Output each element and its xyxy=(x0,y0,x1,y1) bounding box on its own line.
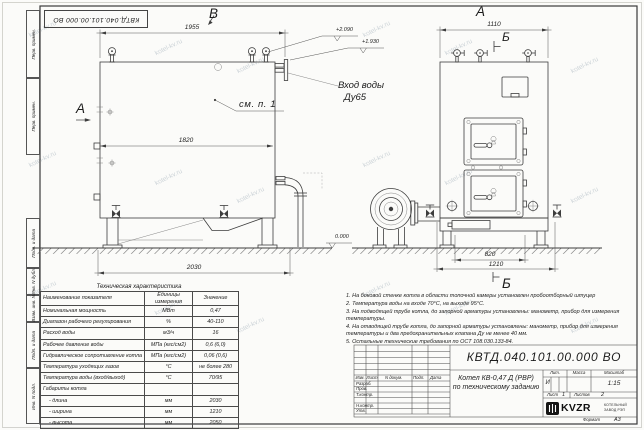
valve-icon xyxy=(553,205,562,217)
change-header-data: Дата xyxy=(430,376,441,380)
margin-box-inv-dubl: Инв. N дубл. xyxy=(26,268,40,295)
spec-table-cell: Температура уходящих газов xyxy=(41,361,145,372)
spec-table-cell: 70/95 xyxy=(193,373,239,384)
brand-name: KVZR xyxy=(561,403,591,414)
spec-header-value: Значение xyxy=(193,292,239,306)
section-label-a: А xyxy=(76,102,85,116)
role-prov: Пров. xyxy=(356,387,367,391)
valve-icon xyxy=(474,50,487,62)
valve-icon xyxy=(248,48,255,62)
sheets-label: Листов xyxy=(574,393,590,397)
valve-icon xyxy=(262,48,269,62)
spec-table-cell: °С xyxy=(145,373,193,384)
kvzr-logo-icon xyxy=(546,402,559,415)
spec-table-cell: Температура воды (вход/выход) xyxy=(41,373,145,384)
drawing-sheet: kotel-kv.rukotel-kv.rukotel-kv.rukotel-k… xyxy=(0,0,644,430)
spec-table-cell: % xyxy=(145,317,193,328)
corner-stamp-number: КВТД.040.101.00.000 ВО xyxy=(53,16,139,23)
notes-block: 1. На боковой стенке котла в области топ… xyxy=(346,293,637,347)
title-block-doc-number: КВТД.040.101.00.000 ВО xyxy=(467,351,622,363)
spec-table-cell: - высота xyxy=(41,417,145,428)
valve-icon xyxy=(220,206,229,218)
dim-side-820: 820 xyxy=(485,252,496,259)
centermark-icon xyxy=(107,109,114,116)
sheets-value: 2 xyxy=(601,393,604,399)
section-label-b-top: Б xyxy=(502,31,510,43)
inlet-label-line2: Ду65 xyxy=(344,93,366,103)
dim-side-1210: 1210 xyxy=(489,262,503,269)
valve-icon xyxy=(451,50,464,62)
valve-icon xyxy=(522,50,535,62)
spec-table-cell: 0,47 xyxy=(193,306,239,317)
spec-table-cell: 0,6 (6,0) xyxy=(193,339,239,350)
spec-table-cell: не более 280 xyxy=(193,361,239,372)
role-utv: Утв. xyxy=(356,409,366,413)
side-view xyxy=(371,41,562,248)
note-line: 1. На боковой стенке котла в области топ… xyxy=(346,293,637,300)
spec-table-cell: МПа (кгс/см2) xyxy=(145,350,193,361)
dim-front-inner: 1820 xyxy=(179,138,193,145)
spec-table-cell: мм xyxy=(145,406,193,417)
spec-table-cell: Рабочее давление воды xyxy=(41,339,145,350)
spec-table-cell: Номинальная мощность xyxy=(41,306,145,317)
dim-front-bottom: 2030 xyxy=(187,265,201,272)
spec-table-body: Номинальная мощностьМВт0,47Диапазон рабо… xyxy=(41,306,239,429)
view-label-a: А xyxy=(476,5,485,19)
spec-table-cell: 0,06 (0,6) xyxy=(193,350,239,361)
dimension-lines xyxy=(76,16,559,283)
pipe-stub-icon xyxy=(446,200,458,212)
valve-icon xyxy=(112,206,121,218)
note-line: 5. Остальные технические требования по О… xyxy=(346,339,637,346)
spec-table-cell: МПа (кгс/см2) xyxy=(145,339,193,350)
lit-value: И xyxy=(546,380,550,386)
elevation-zero: 0.000 xyxy=(335,235,349,241)
spec-header-name: Наименование показателя xyxy=(41,292,145,306)
see-note-callout: см. п. 1 xyxy=(239,100,276,110)
elevation-low: +1.930 xyxy=(362,40,379,46)
spec-table-row: Гидравлическое сопротивление котлаМПа (к… xyxy=(41,350,239,361)
centermark-icon xyxy=(109,160,116,167)
spec-table-cell: мм xyxy=(145,417,193,428)
spec-table-cell: 16 xyxy=(193,328,239,339)
spec-table-cell: 40-110 xyxy=(193,317,239,328)
format-value: А3 xyxy=(614,418,621,424)
margin-box-inv-podl: Инв. N подл. xyxy=(26,368,40,424)
spec-table-row: Рабочее давление водыМПа (кгс/см2)0,6 (6… xyxy=(41,339,239,350)
spec-table-cell: Расход воды xyxy=(41,328,145,339)
change-header-ndokum: N докум. xyxy=(385,376,402,380)
spec-table-cell xyxy=(145,384,193,395)
spec-table-row: Температура воды (вход/выход)°С70/95 xyxy=(41,373,239,384)
outlet-pipe xyxy=(276,173,322,247)
view-label-b: В xyxy=(209,7,218,21)
format-label: Формат xyxy=(583,418,600,422)
spec-table-row: Диапазон рабочего регулирования%40-110 xyxy=(41,317,239,328)
spec-table-cell: МВт xyxy=(145,306,193,317)
spec-table-cell: 2050 xyxy=(193,417,239,428)
spec-table-cell: °С xyxy=(145,361,193,372)
pipe-stub-icon xyxy=(527,200,539,212)
note-line: 3. На подводящей трубе котла, до запорно… xyxy=(346,309,637,324)
spec-table-row: - ширинамм1210 xyxy=(41,406,239,417)
spec-table-header-row: Наименование показателя Единицы измерени… xyxy=(41,292,239,306)
product-title-line2: по техническому заданию xyxy=(453,384,540,391)
change-header-podp: Подп. xyxy=(413,376,424,380)
mass-label: Масса xyxy=(573,371,586,375)
spec-header-units: Единицы измерения xyxy=(145,292,193,306)
blower-fan xyxy=(371,189,441,249)
corner-stamp: КВТД.040.101.00.000 ВО xyxy=(44,10,148,28)
dim-side-top: 1110 xyxy=(487,22,501,29)
dim-front-top: 1955 xyxy=(185,25,199,32)
spec-table-row: Расход водым3/ч16 xyxy=(41,328,239,339)
section-label-b-bottom: Б xyxy=(502,277,511,291)
spec-table-cell: мм xyxy=(145,395,193,406)
spec-table-cell xyxy=(193,384,239,395)
change-header-izm: Изм. xyxy=(356,376,365,380)
spec-table-cell: - ширина xyxy=(41,406,145,417)
spec-table-row: Номинальная мощностьМВт0,47 xyxy=(41,306,239,317)
margin-box-vzam-inv: Взам. инв. N xyxy=(26,295,40,322)
note-line: 4. На отводящей трубе котла, до запорной… xyxy=(346,324,637,339)
role-tkontr: Т.контр. xyxy=(356,393,373,397)
elevation-high: +2.090 xyxy=(336,28,353,34)
scale-label: Масштаб xyxy=(604,371,624,375)
spec-table-cell: Габариты котла xyxy=(41,384,145,395)
spec-table-cell: Диапазон рабочего регулирования xyxy=(41,317,145,328)
spec-table-row: - высотамм2050 xyxy=(41,417,239,428)
spec-table-cell: 1210 xyxy=(193,406,239,417)
sheet-label: Лист xyxy=(547,393,558,397)
lit-label: Лит. xyxy=(550,371,560,375)
margin-box-perv-primen-2: Перв. примен. xyxy=(26,78,40,155)
spec-table-cell: Гидравлическое сопротивление котла xyxy=(41,350,145,361)
product-title-line1: Котел КВ-0,47 Д (РВР) xyxy=(458,375,534,382)
brand-sub-line1: КОТЕЛЬНЫЙ xyxy=(604,404,627,407)
change-header-list: Лист xyxy=(367,376,378,380)
front-view xyxy=(94,48,338,248)
furnace-door-lower xyxy=(464,170,527,217)
brand-sub-line2: ЗАВОД РЭП xyxy=(604,409,625,412)
valve-icon xyxy=(108,48,115,62)
scale-value: 1:15 xyxy=(608,381,621,388)
spec-table: Наименование показателя Единицы измерени… xyxy=(40,291,239,429)
spec-table-cell: - длина xyxy=(41,395,145,406)
sheet-value: 1 xyxy=(562,393,565,399)
margin-box-podp-data-1: Подп. и дата xyxy=(26,218,40,268)
spec-table-row: Температура уходящих газов°Сне более 280 xyxy=(41,361,239,372)
furnace-door-upper xyxy=(464,118,527,165)
inlet-flange xyxy=(275,60,288,81)
spec-table-row: Габариты котла xyxy=(41,384,239,395)
spec-table-row: - длинамм2030 xyxy=(41,395,239,406)
control-box xyxy=(502,77,528,97)
base-frame xyxy=(440,218,548,248)
margin-box-podp-data-2: Подп. и дата xyxy=(26,322,40,368)
inlet-label-line1: Вход воды xyxy=(338,81,384,91)
note-line: 2. Температура воды на входе 70°С, на вы… xyxy=(346,301,637,308)
spec-table-cell: м3/ч xyxy=(145,328,193,339)
spec-table-cell: 2030 xyxy=(193,395,239,406)
margin-box-perv-primen-1: Перв. примен. xyxy=(26,10,40,78)
spec-table-title: Техническая характеристика xyxy=(97,284,182,290)
